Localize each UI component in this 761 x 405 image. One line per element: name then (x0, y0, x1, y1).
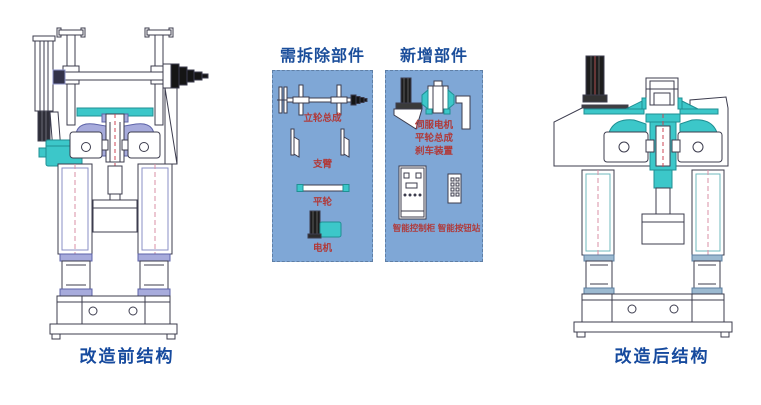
after-caption: 改造后结构 (562, 342, 761, 367)
button-station-drawing (448, 174, 461, 203)
remove-item-label-shaft: 立轮总成 (273, 113, 372, 124)
diagram-canvas: 改造前结构 需拆除部件 新增部件 (0, 0, 761, 405)
remove-item-label-wheel: 平轮 (273, 197, 372, 208)
remove-item-label-motor: 电机 (273, 243, 372, 254)
bearing-block (53, 70, 65, 84)
add-item-label-station: 智能按钮站 (419, 223, 499, 234)
remove-item-label-arm: 支臂 (273, 159, 372, 170)
servo-motor (582, 56, 628, 114)
right-bracket (165, 88, 177, 164)
before-machine-drawing (22, 14, 232, 344)
ram-slide (642, 170, 684, 244)
pulley-stack (33, 36, 55, 111)
control-cabinet-drawing (399, 166, 426, 219)
after-machine-drawing (542, 40, 742, 342)
clutch-assembly (163, 64, 208, 88)
shaft-assembly-drawing (277, 85, 367, 115)
add-item-label-wheel-assembly: 平轮总成 (386, 133, 482, 144)
lower-guides (584, 255, 722, 294)
ram-slide (93, 166, 137, 232)
support-arms-drawing (291, 129, 349, 157)
motor-drawing (308, 211, 341, 238)
add-panel-drawings (386, 71, 484, 263)
remove-panel: 立轮总成 支臂 平轮 电机 (272, 70, 373, 262)
main-shaft (48, 72, 170, 80)
add-item-label-brake: 刹车装置 (386, 146, 482, 157)
machine-base (574, 294, 732, 337)
flat-wheel-drawing (297, 185, 349, 192)
lower-guides (60, 254, 170, 296)
machine-base (50, 296, 177, 339)
add-item-label-servo: 伺服电机 (386, 120, 482, 131)
remove-panel-title: 需拆除部件 (272, 42, 373, 66)
add-panel-title: 新增部件 (385, 42, 483, 66)
add-panel: 伺服电机 平轮总成 刹车装置 智能控制柜 智能按钮站 (385, 70, 483, 262)
before-caption: 改造前结构 (22, 342, 232, 367)
gear-housing-drawing (422, 81, 454, 114)
belt (38, 111, 50, 141)
